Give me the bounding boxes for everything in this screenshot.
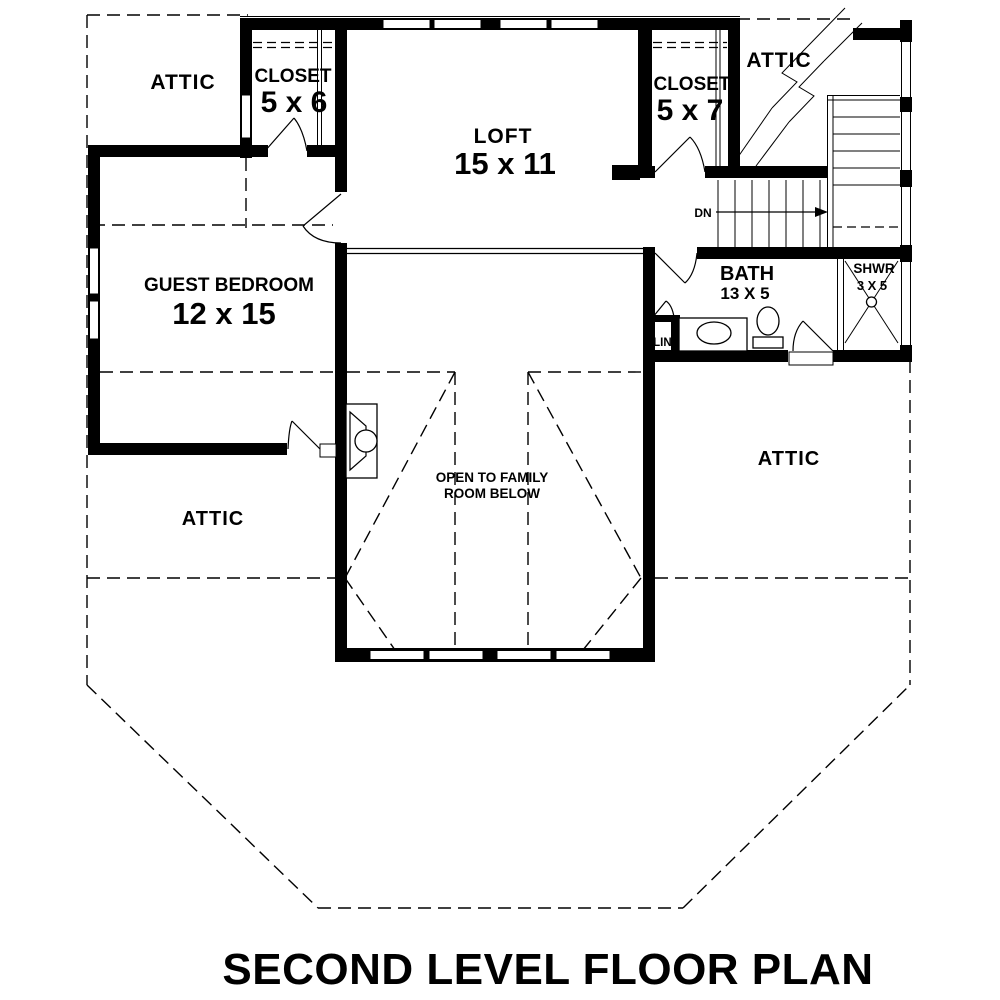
ceiling-fan-symbol (346, 404, 377, 478)
loft-railing (347, 249, 643, 254)
bath-dims: 13 X 5 (720, 284, 769, 303)
guest-bedroom-dims: 12 x 15 (172, 296, 275, 331)
bath-vanity (679, 318, 747, 351)
loft-label: LOFT (474, 125, 533, 148)
loft-door (303, 194, 341, 243)
closet-5x7-door (655, 137, 705, 172)
closet-5x7-dims: 5 x 7 (657, 94, 724, 127)
closet-5x6-door (265, 118, 307, 151)
shower-drain (867, 297, 877, 307)
floor-plan-page: ATTIC CLOSET 5 x 6 LOFT 15 x 11 CLOSET 5… (0, 0, 1000, 1000)
stairs-down-label: DN (694, 206, 711, 220)
page-title: SECOND LEVEL FLOOR PLAN (222, 945, 873, 994)
closet-5x7-label: CLOSET (653, 74, 730, 95)
shower-label: SHWR (853, 261, 894, 276)
attic-top-right-label: ATTIC (746, 49, 811, 72)
toilet (753, 307, 783, 348)
closet-5x6-dims: 5 x 6 (261, 86, 328, 119)
guest-bedroom-label: GUEST BEDROOM (144, 275, 314, 296)
attic-bottom-left-label: ATTIC (182, 508, 244, 530)
shower-dims: 3 X 5 (857, 278, 887, 293)
ceiling-break-lines (87, 158, 910, 650)
stairs-down-arrow (716, 207, 828, 217)
open-to-below-label-line1: OPEN TO FAMILY (436, 470, 549, 485)
open-to-below-label-line2: ROOM BELOW (444, 486, 540, 501)
room-labels: ATTIC CLOSET 5 x 6 LOFT 15 x 11 CLOSET 5… (144, 49, 895, 530)
stair-break-symbol (738, 8, 862, 166)
bath-attic-door (789, 321, 833, 365)
attic-top-left-label: ATTIC (150, 71, 215, 94)
closet-5x6-label: CLOSET (254, 66, 331, 87)
right-wall-windows (902, 42, 911, 345)
attic-bottom-right-label: ATTIC (758, 448, 820, 470)
walls (88, 17, 912, 663)
bedroom-door (288, 421, 336, 457)
loft-dims: 15 x 11 (454, 146, 556, 181)
linen-label: LIN. (653, 337, 675, 349)
linen-closet-door (653, 301, 674, 317)
floor-plan-drawing: ATTIC CLOSET 5 x 6 LOFT 15 x 11 CLOSET 5… (0, 0, 1000, 1000)
bath-entry-door (655, 253, 697, 283)
bath-label: BATH (720, 263, 774, 285)
